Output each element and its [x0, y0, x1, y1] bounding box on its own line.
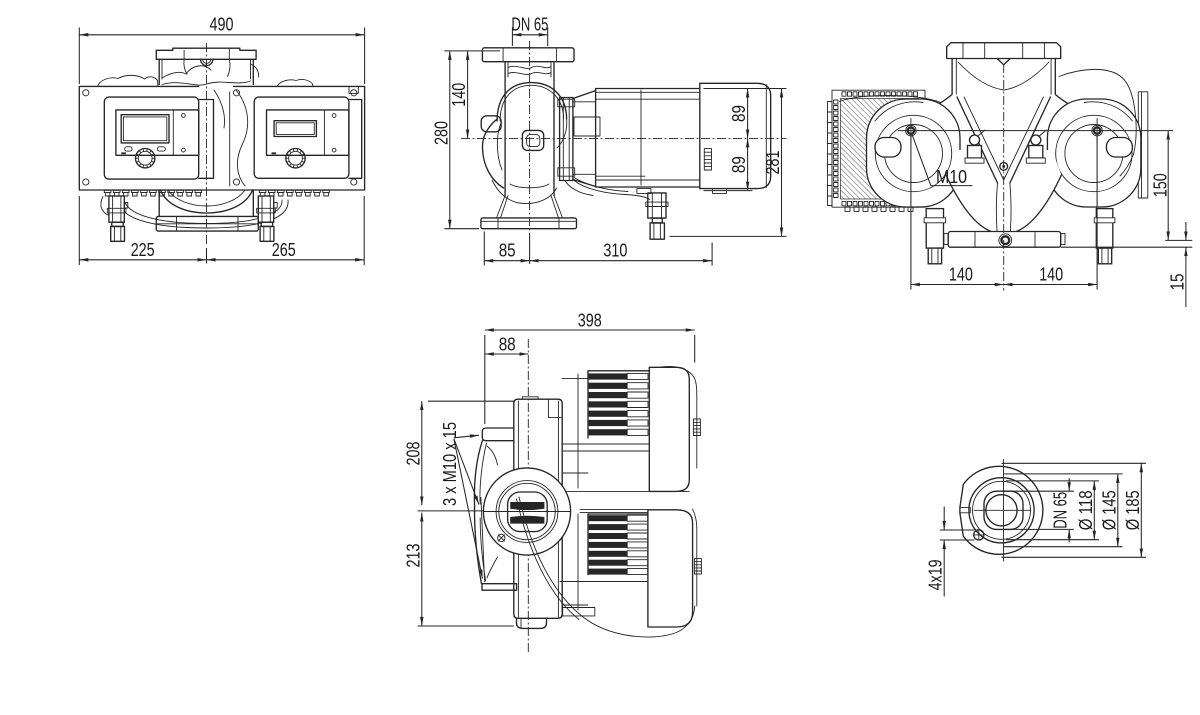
svg-text:281: 281 [763, 151, 783, 175]
svg-text:208: 208 [403, 442, 423, 466]
svg-text:88: 88 [499, 334, 516, 354]
svg-text:Ø 145: Ø 145 [1099, 490, 1119, 530]
svg-text:Ø 118: Ø 118 [1076, 490, 1096, 530]
svg-text:89: 89 [729, 156, 749, 173]
svg-text:150: 150 [1151, 173, 1171, 197]
svg-text:89: 89 [729, 105, 749, 122]
svg-text:4x19: 4x19 [926, 559, 946, 590]
svg-text:213: 213 [403, 544, 423, 568]
svg-text:140: 140 [1039, 265, 1063, 285]
svg-text:490: 490 [210, 14, 234, 34]
svg-text:310: 310 [603, 241, 627, 261]
svg-text:140: 140 [949, 265, 973, 285]
svg-text:DN 65: DN 65 [511, 14, 548, 34]
svg-text:DN 65: DN 65 [1051, 492, 1071, 529]
svg-text:M10: M10 [936, 167, 967, 187]
svg-text:140: 140 [449, 83, 469, 107]
svg-text:225: 225 [131, 240, 155, 260]
svg-text:15: 15 [1167, 274, 1187, 291]
svg-text:280: 280 [431, 121, 451, 145]
svg-text:Ø 185: Ø 185 [1123, 490, 1143, 530]
svg-text:3 x M10 x 15: 3 x M10 x 15 [440, 422, 460, 506]
svg-text:85: 85 [499, 241, 516, 261]
svg-text:265: 265 [272, 240, 296, 260]
svg-text:398: 398 [578, 310, 602, 330]
